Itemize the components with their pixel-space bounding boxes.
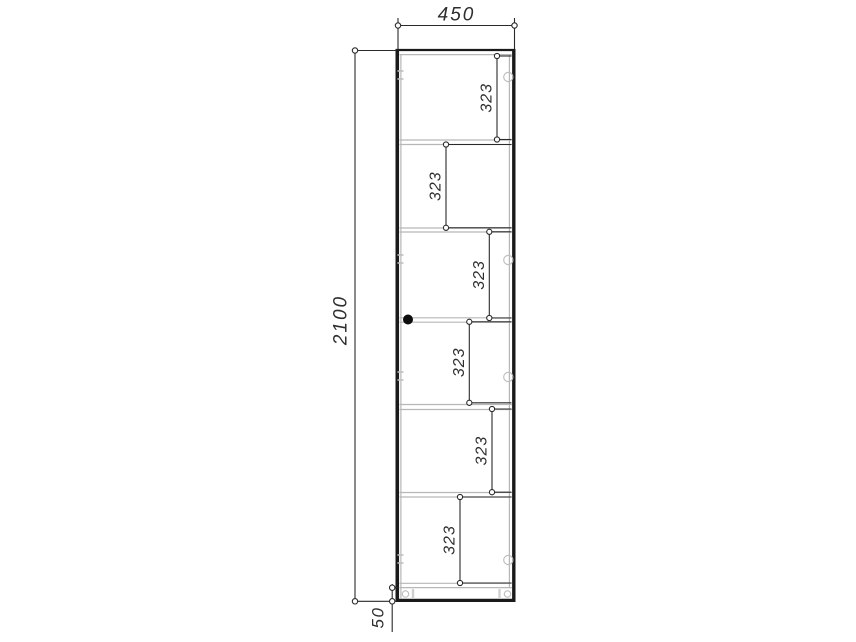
door-knob — [403, 315, 413, 325]
dim-text-width: 450 — [438, 5, 476, 26]
dim-text-section-5: 323 — [474, 436, 491, 466]
dim-text-section-1: 323 — [479, 83, 496, 113]
dim-marker — [352, 48, 357, 53]
dim-marker — [395, 23, 400, 28]
dim-height — [352, 48, 396, 604]
dim-text-section-2: 323 — [428, 171, 445, 201]
dim-marker — [390, 599, 395, 604]
dim-text-section-6: 323 — [442, 525, 459, 555]
dim-text-section-4: 323 — [451, 347, 468, 377]
dim-text-section-3: 323 — [471, 260, 488, 290]
dim-text-plinth: 50 — [369, 607, 388, 629]
drawing-canvas: 450 2100 50 — [0, 0, 856, 642]
dim-text-height: 2100 — [331, 295, 352, 346]
dim-marker — [512, 23, 517, 28]
cabinet-technical-drawing: 450 2100 50 — [0, 0, 856, 642]
dim-marker — [390, 585, 395, 590]
dim-marker — [352, 599, 357, 604]
